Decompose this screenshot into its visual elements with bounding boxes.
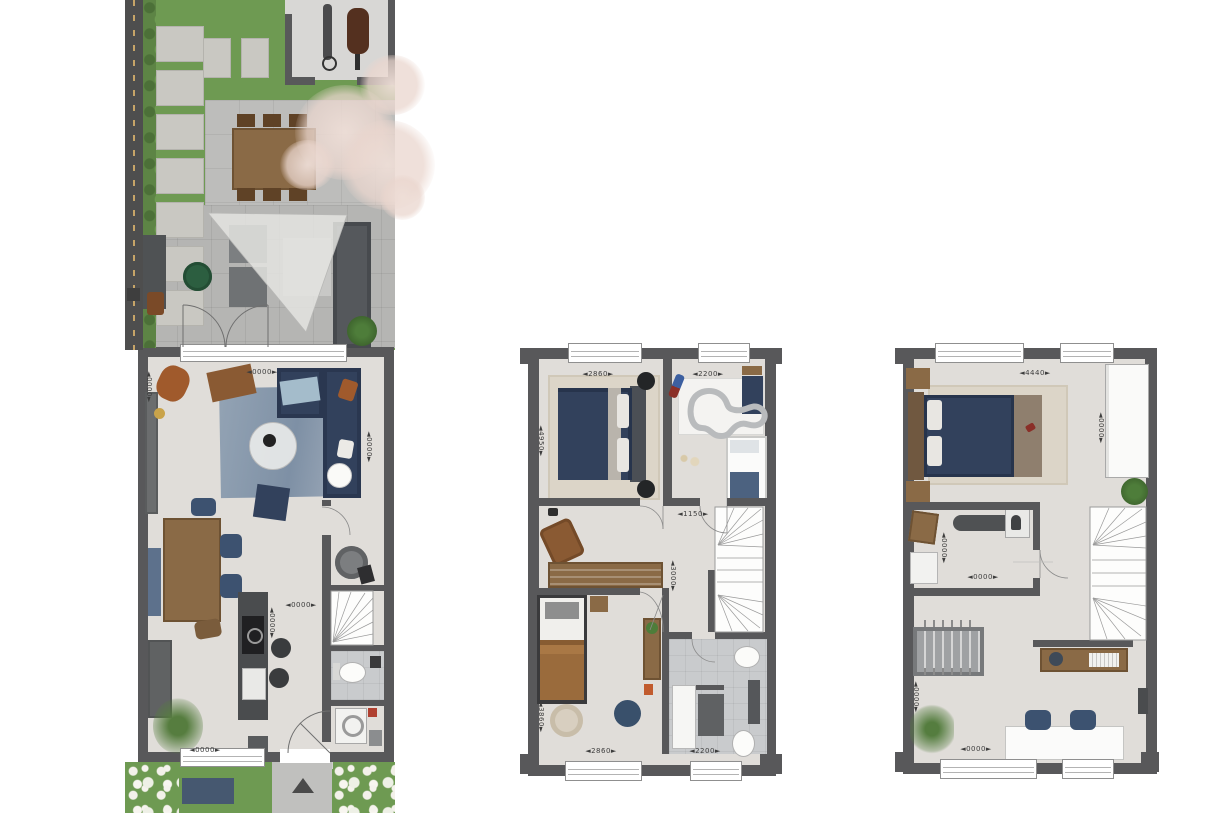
toilet-wall xyxy=(331,645,384,651)
outdoor-ottoman xyxy=(229,225,267,263)
stepping-stone xyxy=(156,158,204,194)
corner-pier xyxy=(772,348,782,364)
plan-first-floor: ◄2860► ◄2200► ◄4950► ◄1150► ◄3000► ◄3860… xyxy=(520,340,782,782)
stair-side-wall xyxy=(708,570,715,632)
plant xyxy=(1121,478,1148,505)
wardrobe xyxy=(548,562,663,588)
dim-label: ◄0000► xyxy=(1097,412,1105,444)
nightstand xyxy=(590,596,608,612)
garden-bench xyxy=(182,778,234,804)
plan-second-floor: ◄4440► ◄0000► ◄0000► ◄0000► ◄0000► ◄0000… xyxy=(893,340,1162,782)
cushion xyxy=(337,439,355,459)
toilet-basin xyxy=(370,656,381,668)
corner-pier xyxy=(895,348,905,364)
garden-coffee-table xyxy=(183,262,212,291)
bed-foot-blanket xyxy=(1014,395,1042,477)
stepping-stone xyxy=(156,70,204,106)
dim-label: ◄4950► xyxy=(537,425,545,457)
outdoor-chair xyxy=(237,188,255,201)
window xyxy=(940,759,1037,779)
stepping-stone xyxy=(156,114,204,150)
desk xyxy=(1005,726,1124,760)
window xyxy=(935,343,1024,363)
nightstand xyxy=(637,480,655,498)
wardrobe xyxy=(1105,364,1149,478)
dim-label: ◄2200► xyxy=(692,370,724,378)
dim-label: ◄4440► xyxy=(1019,369,1051,377)
window xyxy=(690,761,742,781)
pouf xyxy=(253,484,290,521)
folding-table xyxy=(908,510,939,544)
rear-sliding-doors xyxy=(180,344,347,362)
round-lounge-chair xyxy=(550,704,583,737)
bathroom-wall xyxy=(715,632,767,639)
entrance-arrow-icon xyxy=(292,778,314,793)
dim-label: ◄0000► xyxy=(960,745,992,753)
front-door-opening xyxy=(280,749,330,763)
hall-wall xyxy=(727,498,767,506)
laundry-side-wall xyxy=(1033,502,1040,550)
outdoor-ottoman xyxy=(229,267,267,307)
dim-label: ◄0000► xyxy=(285,601,317,609)
wall-shelf xyxy=(742,366,762,375)
window xyxy=(698,343,750,363)
floorplan-canvas: ◄0000► ◄0000► ◄0000► ◄0000► ◄0000► ◄0000… xyxy=(0,0,1220,813)
side-table xyxy=(327,463,352,488)
bar-stool xyxy=(271,638,291,658)
blossom-tree xyxy=(360,55,425,115)
crate xyxy=(368,708,377,717)
foosball-handles xyxy=(917,620,972,627)
shower-mat xyxy=(698,694,724,736)
vanity xyxy=(672,685,696,749)
dim-label: ◄0000► xyxy=(365,431,373,463)
blossom-tree xyxy=(380,175,425,220)
dim-label: ◄0000► xyxy=(912,681,920,713)
corner-sink xyxy=(734,646,760,668)
window xyxy=(1060,343,1114,363)
table-decor xyxy=(263,434,276,447)
corner-pier xyxy=(895,752,909,772)
laundry-basket xyxy=(910,552,938,584)
cargo-bike xyxy=(347,8,369,54)
hall-wall xyxy=(322,535,331,742)
stepping-stone xyxy=(156,202,204,238)
bathroom-wall xyxy=(662,632,692,639)
desk-chair-item xyxy=(644,684,653,695)
side-table-tray xyxy=(147,292,164,315)
hall-wall xyxy=(663,498,700,506)
outdoor-chair xyxy=(263,188,281,201)
corner-pier xyxy=(760,754,782,774)
boiler xyxy=(369,730,382,746)
pillow xyxy=(927,400,942,430)
stepping-stone xyxy=(156,26,204,62)
corner-pier xyxy=(520,348,530,364)
dim-label: ◄0000► xyxy=(246,368,278,376)
bathroom-radiator xyxy=(748,680,760,724)
dim-label: ◄2200► xyxy=(689,747,721,755)
desk-plant xyxy=(646,622,658,634)
garden-gate xyxy=(127,288,140,301)
nightstand xyxy=(906,481,930,502)
dining-chair xyxy=(191,498,216,516)
globe-decor xyxy=(1049,652,1063,666)
dim-label: ◄0000► xyxy=(967,573,999,581)
toilet xyxy=(339,662,366,683)
coffee-table xyxy=(249,422,297,470)
utility-wall xyxy=(331,700,384,706)
pillow xyxy=(617,394,629,428)
outdoor-chair xyxy=(289,188,307,201)
dim-label: ◄0000► xyxy=(189,746,221,754)
iron xyxy=(1011,515,1021,530)
flower-bed xyxy=(333,764,395,813)
dim-label: ◄0000► xyxy=(940,532,948,564)
potted-plant xyxy=(347,316,377,346)
dim-label: ◄3860► xyxy=(537,701,545,733)
garden-paver xyxy=(241,38,269,78)
dim-label: ◄0000► xyxy=(145,371,153,403)
dining-chair xyxy=(220,534,242,558)
garden-paver xyxy=(203,38,231,78)
outdoor-chair xyxy=(263,114,281,127)
dim-label: ◄2860► xyxy=(585,747,617,755)
kitchen-island xyxy=(238,592,268,720)
books-decor xyxy=(1089,653,1119,667)
dim-label: ◄1150► xyxy=(677,510,709,518)
bedroom-divider-wall xyxy=(663,355,672,505)
dining-bench xyxy=(148,548,161,616)
dining-table xyxy=(163,518,221,622)
cooktop-burner xyxy=(247,628,263,644)
bedroom-wall xyxy=(914,502,1040,510)
slippers xyxy=(548,508,558,516)
toys xyxy=(678,452,702,468)
plan-ground-floor: ◄0000► ◄0000► ◄0000► ◄0000► ◄0000► ◄0000… xyxy=(125,0,395,813)
ironing-board xyxy=(953,515,1009,531)
pillow xyxy=(617,438,629,472)
toilet xyxy=(732,730,755,757)
corner-pier xyxy=(1141,752,1159,772)
blue-chair xyxy=(614,700,641,727)
headboard xyxy=(908,392,924,480)
desk-chair xyxy=(1025,710,1051,730)
shower-partition xyxy=(696,685,724,690)
washer-drum xyxy=(342,715,364,737)
pillow xyxy=(927,436,942,466)
dim-label: ◄0000► xyxy=(268,607,276,639)
laundry-wall xyxy=(905,588,1040,596)
bedroom3-wall xyxy=(535,588,640,595)
foosball-handles xyxy=(917,668,972,675)
nightstand xyxy=(637,372,655,390)
blossom-tree xyxy=(280,140,335,190)
outdoor-mat xyxy=(283,238,331,296)
corner-pier xyxy=(520,754,534,774)
window xyxy=(565,761,642,781)
kitchen-sink xyxy=(242,668,266,700)
stair-wall xyxy=(1033,640,1133,647)
single-bed-blanket xyxy=(540,640,584,700)
single-bed-pillow xyxy=(545,602,579,619)
desk-chair xyxy=(1070,710,1096,730)
toy-chest xyxy=(742,376,763,414)
kid-bed-blanket xyxy=(730,472,759,498)
headboard xyxy=(630,386,646,482)
kid-bed-pillow xyxy=(730,440,759,453)
shed-wall-left xyxy=(285,14,292,80)
hall-wall xyxy=(535,498,640,506)
bicycle-wheel xyxy=(322,56,337,71)
window xyxy=(568,343,642,363)
bicycle xyxy=(323,4,332,60)
dim-label: ◄2860► xyxy=(582,370,614,378)
floor-lamp xyxy=(154,408,165,419)
hall-wall xyxy=(322,500,331,506)
cargo-bike-wheel xyxy=(355,54,360,70)
bar-stool xyxy=(269,668,289,688)
shed-wall-bottom xyxy=(285,77,315,85)
nightstand xyxy=(906,368,930,389)
corner-pier xyxy=(1145,348,1157,364)
flower-bed xyxy=(127,764,179,813)
outdoor-chair xyxy=(237,114,255,127)
stair-wall xyxy=(331,585,384,591)
bedroom3-side-wall xyxy=(662,588,669,754)
radiator xyxy=(1138,688,1148,714)
window xyxy=(1062,759,1114,779)
dim-label: ◄3000► xyxy=(669,560,677,592)
